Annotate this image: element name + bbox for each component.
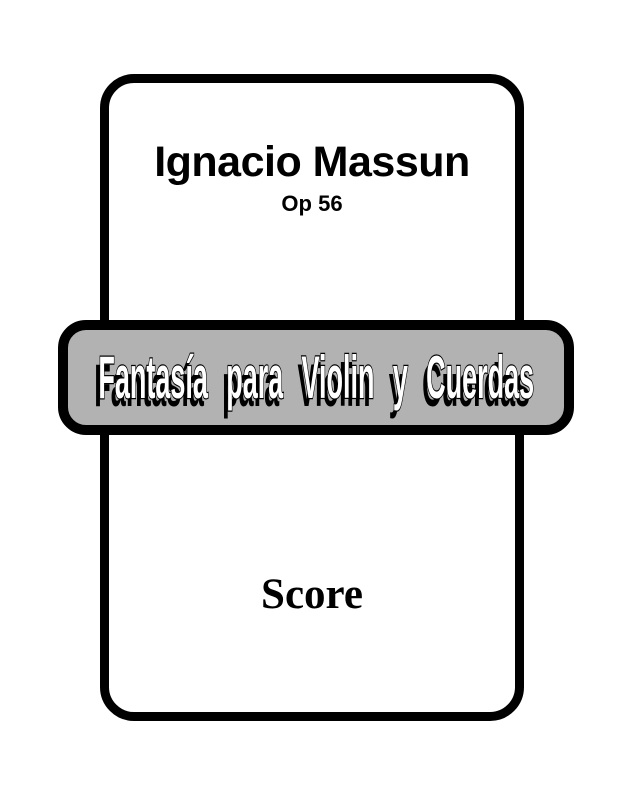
work-title: Fantasía para Violin y Cuerdas xyxy=(98,348,534,408)
composer-name: Ignacio Massun xyxy=(100,141,524,184)
score-cover-page: Ignacio Massun Op 56 Fantasía para Violi… xyxy=(0,0,618,800)
part-label: Score xyxy=(100,573,524,616)
title-banner: Fantasía para Violin y Cuerdas xyxy=(58,320,574,435)
opus-number: Op 56 xyxy=(100,193,524,215)
